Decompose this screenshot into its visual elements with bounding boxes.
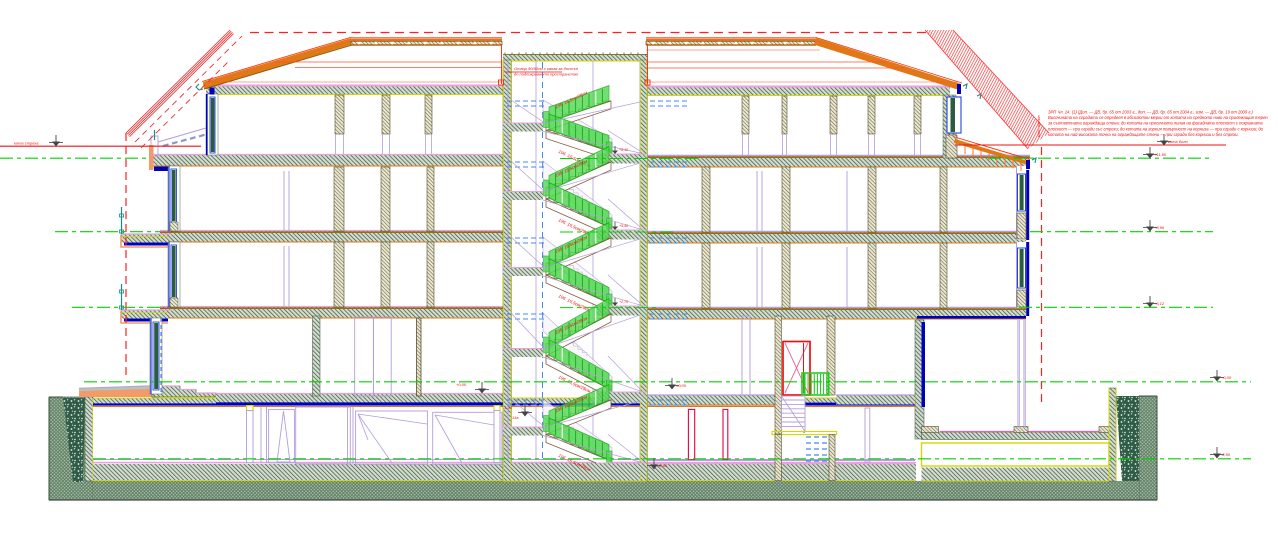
svg-text:+0,00: +0,00 xyxy=(1221,375,1232,380)
svg-text:+8,10: +8,10 xyxy=(619,148,628,152)
svg-text:ЗРП Чл. 24. (1) (Доп. — ДВ, бр: ЗРП Чл. 24. (1) (Доп. — ДВ, бр. 65 от 20… xyxy=(1048,110,1254,115)
svg-text:кота било: кота било xyxy=(1168,139,1188,144)
svg-text:-1,30: -1,30 xyxy=(503,405,513,410)
svg-text:+2,70: +2,70 xyxy=(619,300,628,304)
svg-text:+5,40: +5,40 xyxy=(619,224,628,228)
svg-text:+0,00: +0,00 xyxy=(456,382,467,387)
svg-text:Отвор 90/90см с капак за достъ: Отвор 90/90см с капак за достъп xyxy=(514,66,579,71)
svg-text:14в: 14в xyxy=(512,415,519,420)
svg-text:Височината на сградата се опре: Височината на сградата се определя в абс… xyxy=(1048,115,1268,120)
svg-text:за съответната ограждаща стена: за съответната ограждаща стена: до котат… xyxy=(1047,121,1263,126)
svg-text:котата на най-високата точка н: котата на най-високата точка на ограждащ… xyxy=(1048,132,1239,137)
svg-text:±0,00: ±0,00 xyxy=(676,383,687,388)
svg-text:кота стреха: кота стреха xyxy=(14,141,39,146)
svg-text:+6,12: +6,12 xyxy=(1154,301,1165,306)
svg-text:-2,60: -2,60 xyxy=(658,463,668,468)
svg-text:макс. наклон: макс. наклон xyxy=(1037,115,1041,137)
svg-text:+8,96: +8,96 xyxy=(1154,225,1165,230)
svg-text:до подпокривното пространство: до подпокривното пространство xyxy=(514,72,579,77)
svg-text:-2,80: -2,80 xyxy=(1221,452,1231,457)
svg-text:+11,80: +11,80 xyxy=(1154,152,1167,157)
svg-text:плоскост — при сгради със стре: плоскост — при сгради със стрехи; до кот… xyxy=(1048,126,1264,131)
